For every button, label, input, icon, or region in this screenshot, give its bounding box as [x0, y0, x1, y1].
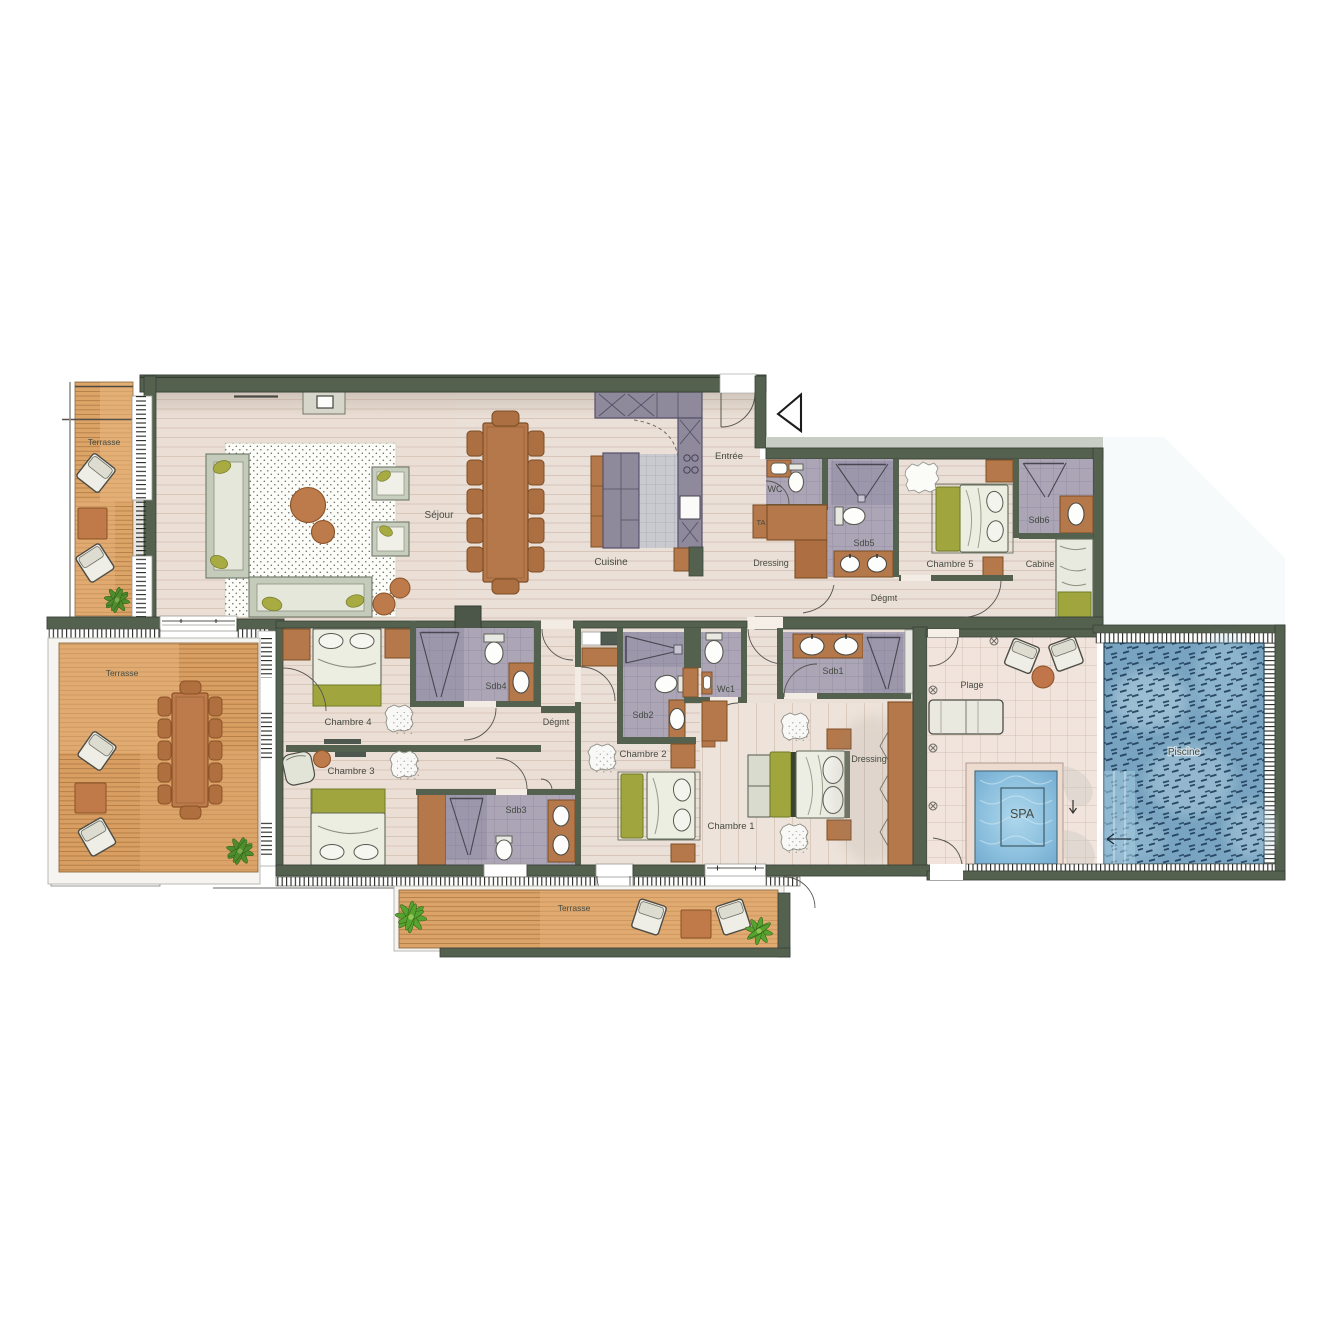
svg-text:Dressing: Dressing	[753, 558, 789, 568]
svg-text:Plage: Plage	[960, 680, 983, 690]
svg-text:Terrasse: Terrasse	[88, 437, 121, 447]
svg-text:Sdb1: Sdb1	[822, 666, 843, 676]
svg-text:Terrasse: Terrasse	[106, 668, 139, 678]
svg-text:WC: WC	[768, 484, 783, 494]
svg-text:Sdb2: Sdb2	[632, 710, 653, 720]
svg-text:Entrée: Entrée	[715, 451, 743, 462]
svg-text:Sdb4: Sdb4	[485, 681, 506, 691]
svg-text:Terrasse: Terrasse	[558, 903, 591, 913]
svg-text:Séjour: Séjour	[425, 510, 455, 521]
svg-text:Chambre 5: Chambre 5	[927, 559, 974, 570]
svg-text:Piscine: Piscine	[1168, 747, 1201, 758]
svg-text:Dressing: Dressing	[851, 754, 887, 764]
svg-text:SPA: SPA	[1010, 807, 1035, 821]
svg-text:Chambre 1: Chambre 1	[708, 821, 755, 832]
svg-text:Cabine: Cabine	[1026, 559, 1055, 569]
svg-text:Chambre 4: Chambre 4	[325, 717, 372, 728]
svg-text:Dégmt: Dégmt	[871, 593, 898, 603]
svg-text:Dégmt: Dégmt	[543, 717, 570, 727]
svg-text:Sdb3: Sdb3	[505, 805, 526, 815]
svg-text:Chambre 2: Chambre 2	[620, 749, 667, 760]
svg-text:Sdb6: Sdb6	[1028, 515, 1049, 525]
svg-text:Sdb5: Sdb5	[853, 538, 874, 548]
svg-text:Wc1: Wc1	[717, 684, 735, 694]
svg-text:Chambre 3: Chambre 3	[328, 766, 375, 777]
svg-text:Cuisine: Cuisine	[594, 557, 628, 568]
svg-text:TA: TA	[756, 518, 765, 527]
